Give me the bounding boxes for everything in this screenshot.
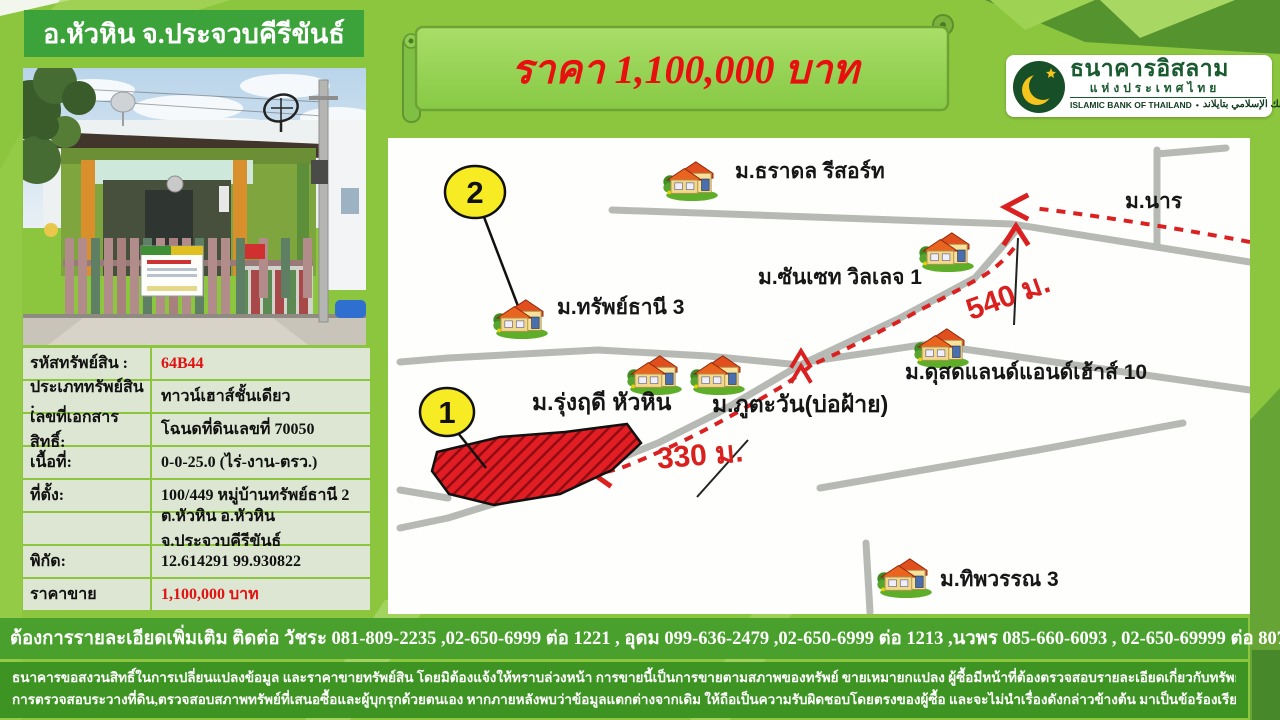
bank-logo-icon [1011, 58, 1067, 114]
map-label-phutawan: ม.ภูตะวัน(บ่อฝ้าย) [712, 391, 888, 419]
row-value-coordinates: 12.614291 99.930822 [152, 546, 370, 577]
property-photo [23, 68, 366, 345]
photo-hanging-cloth [219, 186, 229, 212]
location-title: อ.หัวหิน จ.ประจวบคีรีขันธ์ [43, 12, 345, 55]
contact-bar: ต้องการรายละเอียดเพิ่มเติม ติดต่อ วัชระ … [0, 618, 1248, 659]
marker-1-number: 1 [438, 395, 455, 430]
row-value-address-2: ต.หัวหิน อ.หัวหิน จ.ประจวบคีรีขันธ์ [152, 513, 370, 544]
photo-notice-sign [141, 246, 203, 296]
map-label-thipawan: ม.ทิพวรรณ 3 [940, 568, 1059, 591]
photo-red-bag [245, 244, 265, 259]
map-label-dusitland: ม.ดุสดแลนด์แอนด์เฮ้าส์ 10 [905, 360, 1147, 386]
photo-neighbor-window [341, 188, 359, 214]
bank-name-arabic: البنك الإسلامي بتايلاند [1203, 100, 1280, 110]
row-value-property-type: ทาวน์เฮาส์ชั้นเดียว [152, 381, 370, 412]
table-row: ราคาขาย1,100,000 บาท [23, 579, 370, 610]
row-label [23, 513, 150, 544]
row-label: เนื้อที่: [23, 447, 150, 478]
row-label: ที่ตั้ง: [23, 480, 150, 511]
table-row: ต.หัวหิน อ.หัวหิน จ.ประจวบคีรีขันธ์ [23, 513, 370, 544]
location-header: อ.หัวหิน จ.ประจวบคีรีขันธ์ [24, 10, 364, 57]
map-label-nara: ม.นาร [1125, 190, 1183, 213]
table-row: พิกัด:12.614291 99.930822 [23, 546, 370, 577]
disclaimer-line-1: ธนาคารขอสงวนสิทธิ์ในการเปลี่ยนแปลงข้อมูล… [12, 667, 1236, 689]
contact-text: ต้องการรายละเอียดเพิ่มเติม ติดต่อ วัชระ … [10, 624, 1280, 653]
bank-name-thai: ธนาคารอิสลาม [1070, 57, 1268, 80]
photo-curb [23, 314, 366, 318]
table-row: เลขที่เอกสารสิทธิ์:โฉนดที่ดินเลขที่ 7005… [23, 414, 370, 445]
photo-blue-car [335, 300, 366, 318]
photo-hanging-lamp [167, 176, 183, 192]
bank-logo: ธนาคารอิสลาม แห่งประเทศไทย ISLAMIC BANK … [1006, 55, 1272, 117]
row-value-deed-number: โฉนดที่ดินเลขที่ 70050 [152, 414, 370, 445]
location-map: 2 1 ม.ธราดล รีสอร์ท ม.นาร ม.ซันเซท วิลเล… [388, 138, 1250, 614]
price-banner: ราคา 1,100,000 บาท [393, 4, 968, 128]
row-label: เลขที่เอกสารสิทธิ์: [23, 414, 150, 445]
marker-2-number: 2 [466, 175, 483, 210]
row-label: พิกัด: [23, 546, 150, 577]
disclaimer-bar: ธนาคารขอสงวนสิทธิ์ในการเปลี่ยนแปลงข้อมูล… [0, 662, 1248, 718]
photo-yellow-ornament [44, 223, 58, 237]
map-label-sunset: ม.ซันเซท วิลเลจ 1 [758, 266, 922, 289]
map-label-rungrudee: ม.รุ่งฤดี หัวหิน [532, 389, 672, 417]
row-value-area: 0-0-25.0 (ไร่-งาน-ตรว.) [152, 447, 370, 478]
bank-subname-thai: แห่งประเทศไทย [1070, 82, 1240, 94]
map-label-sapthani: ม.ทรัพย์ธานี 3 [557, 295, 684, 319]
row-value-sale-price: 1,100,000 บาท [152, 579, 370, 610]
map-label-tharadol: ม.ธราดล รีสอร์ท [735, 159, 885, 183]
bank-name-english-row: ISLAMIC BANK OF THAILAND • البنك الإسلام… [1070, 97, 1266, 110]
property-detail-table: รหัสทรัพย์สิน :64B44 ประเภททรัพย์สิน :ทา… [23, 348, 370, 610]
disclaimer-line-2: การตรวจสอบระวางที่ดิน,ตรวจสอบสภาพทรัพย์ท… [12, 689, 1236, 711]
price-text: ราคา 1,100,000 บาท [511, 47, 862, 92]
row-value-property-code: 64B44 [152, 348, 370, 379]
photo-driveway [48, 318, 308, 345]
row-label: ราคาขาย [23, 579, 150, 610]
table-row: เนื้อที่:0-0-25.0 (ไร่-งาน-ตรว.) [23, 447, 370, 478]
bank-name-separator: • [1196, 101, 1199, 110]
scroll-curl-left-center [409, 39, 414, 44]
bank-name-english: ISLAMIC BANK OF THAILAND [1070, 101, 1192, 110]
